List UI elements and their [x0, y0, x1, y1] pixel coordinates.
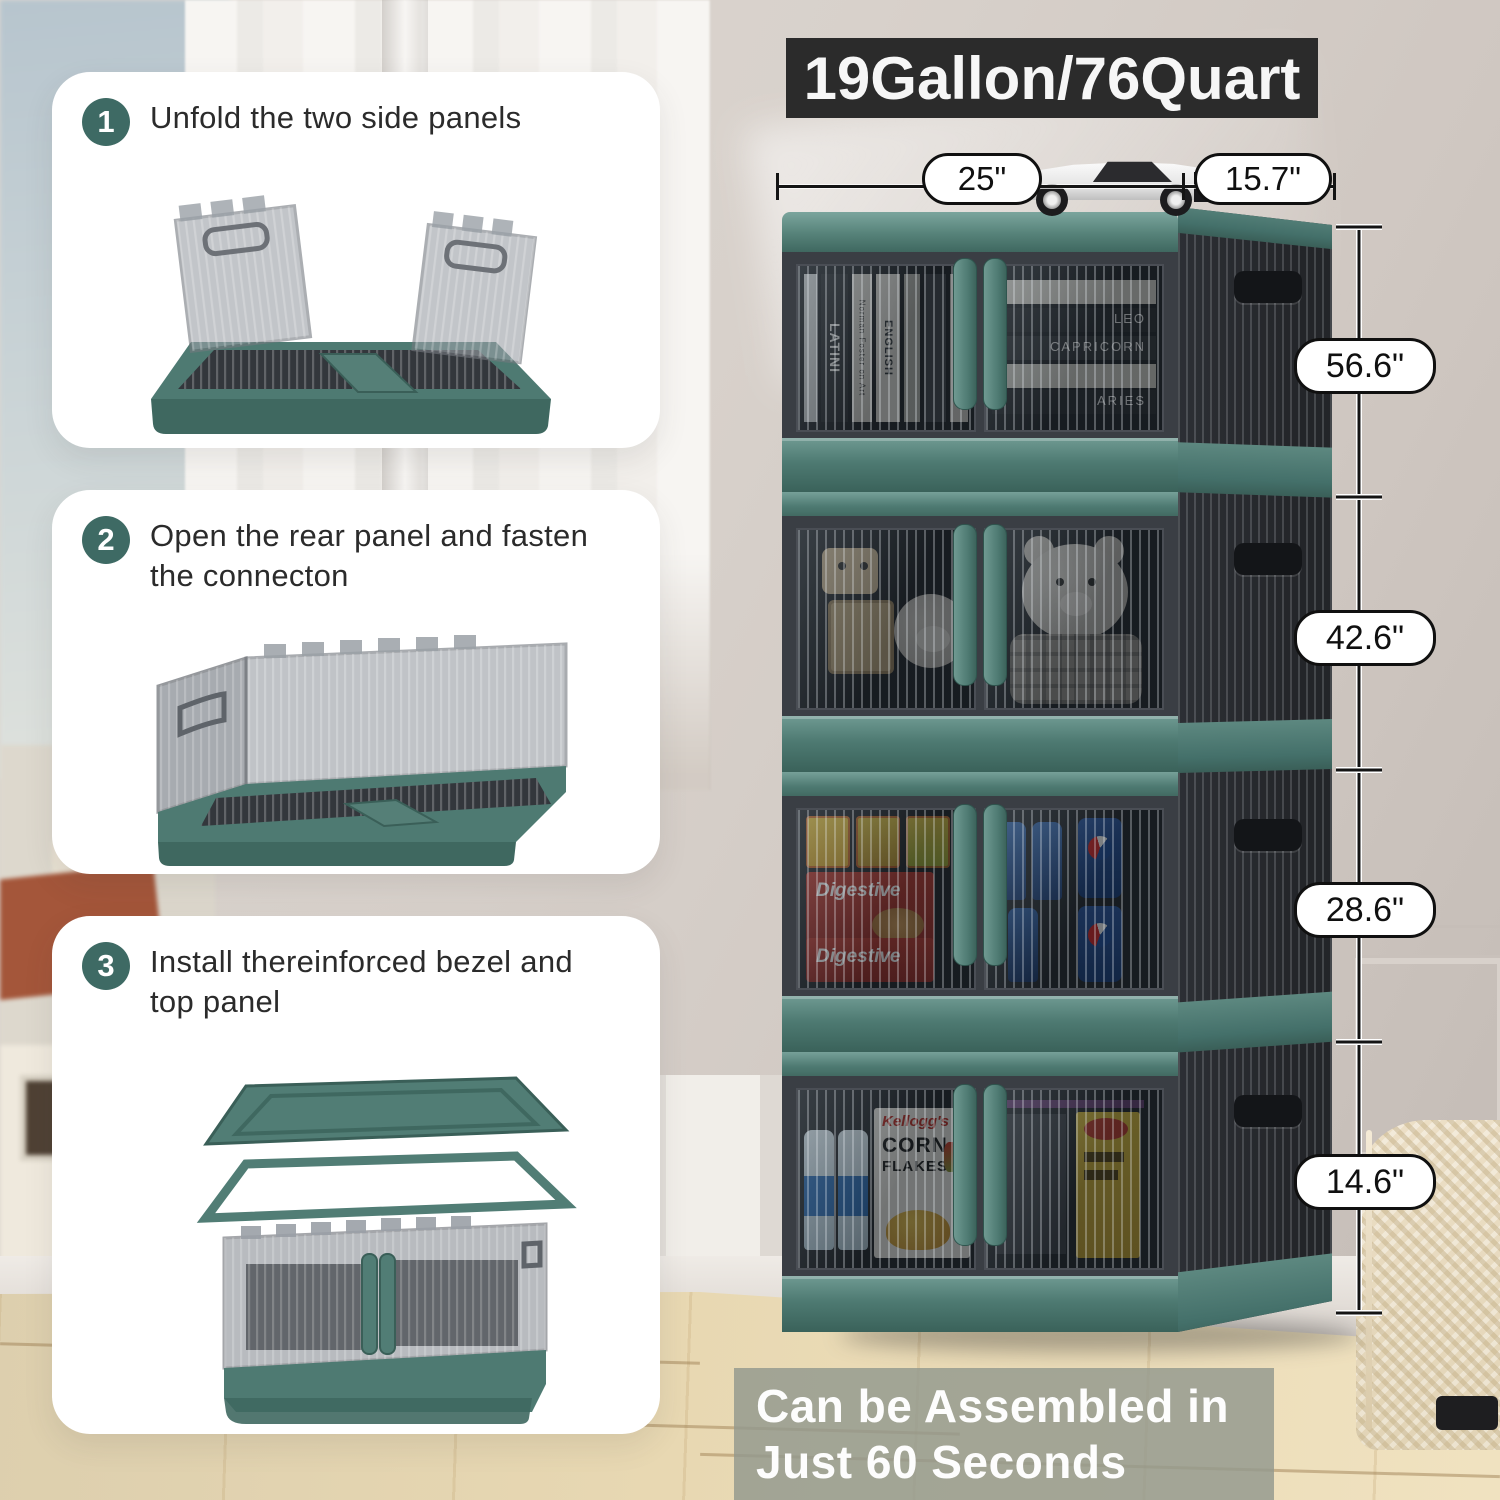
tier-2-rim — [782, 492, 1178, 516]
sofa-foot — [1436, 1396, 1498, 1430]
tier-2-left-door — [796, 528, 976, 710]
step-card-1: 1 Unfold the two side panels — [52, 72, 660, 448]
step-3-line2: top panel — [150, 984, 280, 1019]
side-tier-band — [1173, 442, 1339, 498]
tier-4-left-glass — [798, 1090, 974, 1268]
cabinet-tier-4: Kellogg's CORN FLAKES — [782, 1052, 1178, 1332]
capacity-banner: 19Gallon/76Quart — [786, 38, 1318, 118]
cabinet-front: LATINI Norman Foster on Art ENGLISH — [782, 212, 1178, 1332]
door-handle — [983, 804, 1007, 966]
tier-4-rim — [782, 1052, 1178, 1076]
height-label-2-bins: 28.6" — [1294, 882, 1436, 938]
tier-3-right-door — [984, 808, 1164, 990]
width-value: 25" — [958, 160, 1006, 198]
cabinet-tier-3: Digestive Digestive — [782, 772, 1178, 1052]
tier-1-right-door: LEO CAPRICORN ARIES — [984, 264, 1164, 432]
side-tier-band — [1172, 991, 1339, 1052]
tier-3-frame: Digestive Digestive — [782, 796, 1178, 996]
height-label-3-bins: 42.6" — [1294, 610, 1436, 666]
height-label-4-bins: 56.6" — [1294, 338, 1436, 394]
tier-2-left-glass — [798, 530, 974, 708]
cabinet-tier-1: LATINI Norman Foster on Art ENGLISH — [782, 212, 1178, 492]
side-handle-cutout — [1234, 1095, 1302, 1127]
door-handle — [953, 524, 977, 686]
dimension-tick — [1336, 494, 1382, 500]
step-1-line1: Unfold the two side panels — [150, 100, 521, 135]
tier-4-right-glass — [986, 1090, 1162, 1268]
tier-2-frame — [782, 516, 1178, 716]
capacity-banner-text: 19Gallon/76Quart — [804, 44, 1301, 113]
tier-2-right-door — [984, 528, 1164, 710]
car-wheel — [1160, 184, 1192, 216]
dimension-tick — [1336, 1039, 1382, 1045]
step-1-text: Unfold the two side panels — [150, 98, 521, 138]
tier-4-left-door: Kellogg's CORN FLAKES — [796, 1088, 976, 1270]
step-2-text: Open the rear panel and fasten the conne… — [150, 516, 588, 596]
assembly-claim-line2: Just 60 Seconds — [756, 1434, 1274, 1490]
tier-3-left-door: Digestive Digestive — [796, 808, 976, 990]
tier-1-handles — [953, 258, 1007, 410]
step-1-number-badge: 1 — [82, 98, 130, 146]
tier-3-left-glass — [798, 810, 974, 988]
dimension-tick — [1333, 173, 1336, 200]
step-2-illustration — [52, 616, 660, 868]
door-handle — [953, 258, 977, 410]
tier-4-frame: Kellogg's CORN FLAKES — [782, 1076, 1178, 1276]
step-2-line1: Open the rear panel and fasten — [150, 518, 588, 553]
tier-1-left-glass — [798, 266, 974, 430]
dimension-tick — [1336, 767, 1382, 773]
dimension-tick — [1336, 224, 1382, 230]
car-wheel — [1036, 184, 1068, 216]
tier-3-base-band — [782, 996, 1178, 1052]
step-2-line2: the connecton — [150, 558, 349, 593]
side-handle-cutout — [1234, 271, 1302, 303]
tier-2-handles — [953, 524, 1007, 686]
door-handle — [983, 1084, 1007, 1246]
door-handle — [953, 1084, 977, 1246]
cabinet-lid — [782, 212, 1178, 252]
tier-4-handles — [953, 1084, 1007, 1246]
step-3-line1: Install thereinforced bezel and — [150, 944, 573, 979]
assembly-claim-line1: Can be Assembled in — [756, 1378, 1274, 1434]
door-handle — [983, 524, 1007, 686]
step-2-header: 2 Open the rear panel and fasten the con… — [52, 490, 660, 596]
door-handle — [953, 804, 977, 966]
tier-1-right-glass — [986, 266, 1162, 430]
tier-3-rim — [782, 772, 1178, 796]
side-handle-cutout — [1234, 543, 1302, 575]
door-handle — [983, 258, 1007, 410]
tier-2-base-band — [782, 716, 1178, 772]
step-1-header: 1 Unfold the two side panels — [52, 72, 660, 146]
tier-4-right-door — [984, 1088, 1164, 1270]
tier-3-handles — [953, 804, 1007, 966]
height-label-1-bin: 14.6" — [1294, 1154, 1436, 1210]
dimension-tick — [1182, 173, 1185, 200]
tier-4-base-band — [782, 1276, 1178, 1332]
depth-value: 15.7" — [1225, 160, 1301, 198]
step-card-2: 2 Open the rear panel and fasten the con… — [52, 490, 660, 874]
tier-1-frame: LATINI Norman Foster on Art ENGLISH — [782, 252, 1178, 438]
height-value: 42.6" — [1326, 619, 1404, 658]
side-handle-cutout — [1234, 819, 1302, 851]
step-card-3: 3 Install thereinforced bezel and top pa… — [52, 916, 660, 1434]
height-value: 28.6" — [1326, 891, 1404, 930]
tier-2-right-glass — [986, 530, 1162, 708]
tier-3-right-glass — [986, 810, 1162, 988]
step-1-illustration — [52, 174, 660, 442]
height-value: 14.6" — [1326, 1163, 1404, 1202]
step-3-number-badge: 3 — [82, 942, 130, 990]
rear-panel-open-drawing — [96, 616, 616, 868]
dimension-tick — [1336, 1310, 1382, 1316]
product-listing-image: 1 Unfold the two side panels — [0, 0, 1500, 1500]
width-dimension-label: 25" — [922, 153, 1042, 205]
step-3-illustration — [52, 1068, 660, 1428]
tier-1-base-band — [782, 438, 1178, 492]
cabinet-tier-2 — [782, 492, 1178, 772]
step-3-header: 3 Install thereinforced bezel and top pa… — [52, 916, 660, 1022]
tier-1-left-door: LATINI Norman Foster on Art ENGLISH — [796, 264, 976, 432]
side-tier-band — [1173, 719, 1338, 773]
lid-and-bezel-drawing — [96, 1068, 616, 1428]
dimension-tick — [776, 173, 779, 200]
height-value: 56.6" — [1326, 347, 1404, 386]
unfolded-side-panels-drawing — [96, 174, 616, 442]
step-2-number-badge: 2 — [82, 516, 130, 564]
assembly-claim-overlay: Can be Assembled in Just 60 Seconds — [734, 1368, 1274, 1500]
step-3-text: Install thereinforced bezel and top pane… — [150, 942, 573, 1022]
depth-dimension-label: 15.7" — [1194, 153, 1332, 205]
